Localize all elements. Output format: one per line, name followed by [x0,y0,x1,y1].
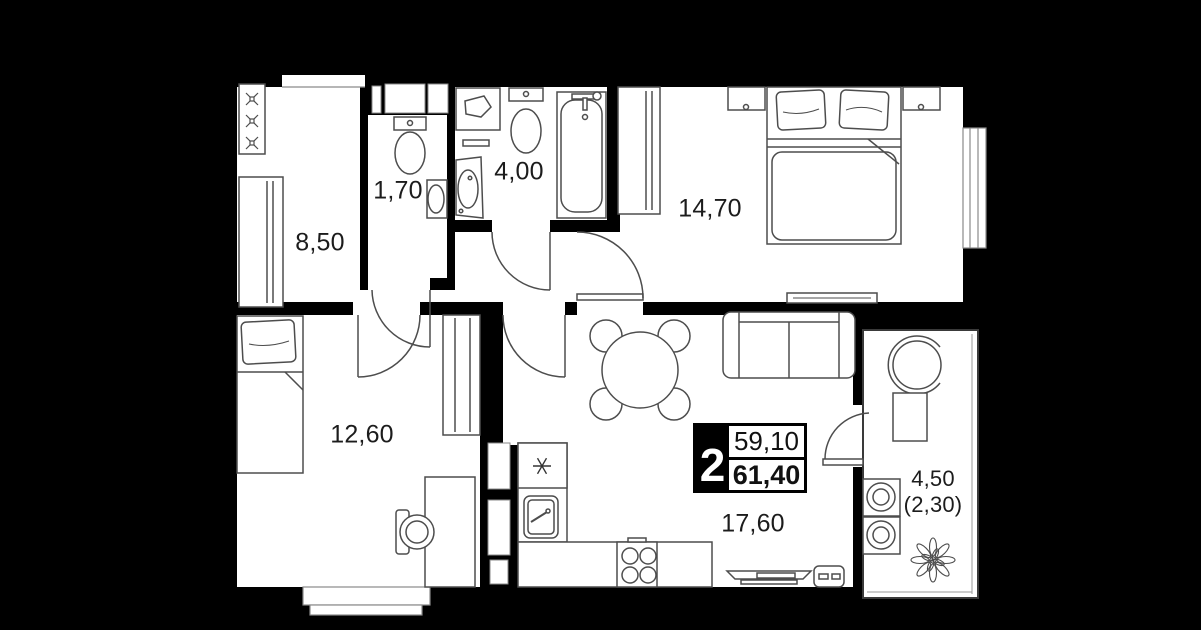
area-primary: 59,10 [729,426,804,460]
floor-plan-canvas: 8,50 1,70 4,00 14,70 12,60 17,60 4,50 (2… [0,0,1201,630]
nightstand-left [728,87,765,110]
area-total: 61,40 [729,460,804,491]
apartment-info-box: 2 59,10 61,40 [693,423,807,493]
stove-icon [617,538,657,587]
bath-sink-icon [456,157,483,218]
room-label-bathroom: 4,00 [494,158,543,187]
rooms-count: 2 [696,426,729,490]
bath-toilet-icon [509,88,543,153]
single-bed-icon [237,316,303,473]
double-bed-icon [767,87,901,244]
toilet-icon [394,117,426,174]
room-label-hallway: 8,50 [295,229,344,258]
bathtub-icon [557,92,606,218]
dining-set-icon [590,320,690,420]
kitchen-sink-icon [524,496,558,538]
bedroom-wardrobe [618,87,660,214]
window-bedroom-right [963,128,986,248]
bedroom-console [787,293,877,303]
window-room-bottom [303,587,430,605]
floor-plan-drawing [0,0,1201,630]
media-box-icon [814,566,844,587]
hall-wardrobe [239,177,283,307]
room-label-kitchen-living: 17,60 [721,510,785,539]
nightstand-right [903,87,940,110]
room-wardrobe [443,315,480,435]
wc-sink-icon [427,180,447,218]
room-label-balcony-secondary: (2,30) [904,492,963,518]
room-label-balcony: 4,50 [911,466,955,492]
fridge-icon [518,443,567,488]
balcony-table-icon [893,393,927,441]
coat-rack-icon [239,84,265,154]
sofa-icon [723,312,855,378]
room-label-bedroom: 14,70 [678,195,742,224]
room-label-room: 12,60 [330,421,394,450]
washer-dryer-stack-icon [863,479,900,554]
room-label-wc: 1,70 [373,177,422,206]
